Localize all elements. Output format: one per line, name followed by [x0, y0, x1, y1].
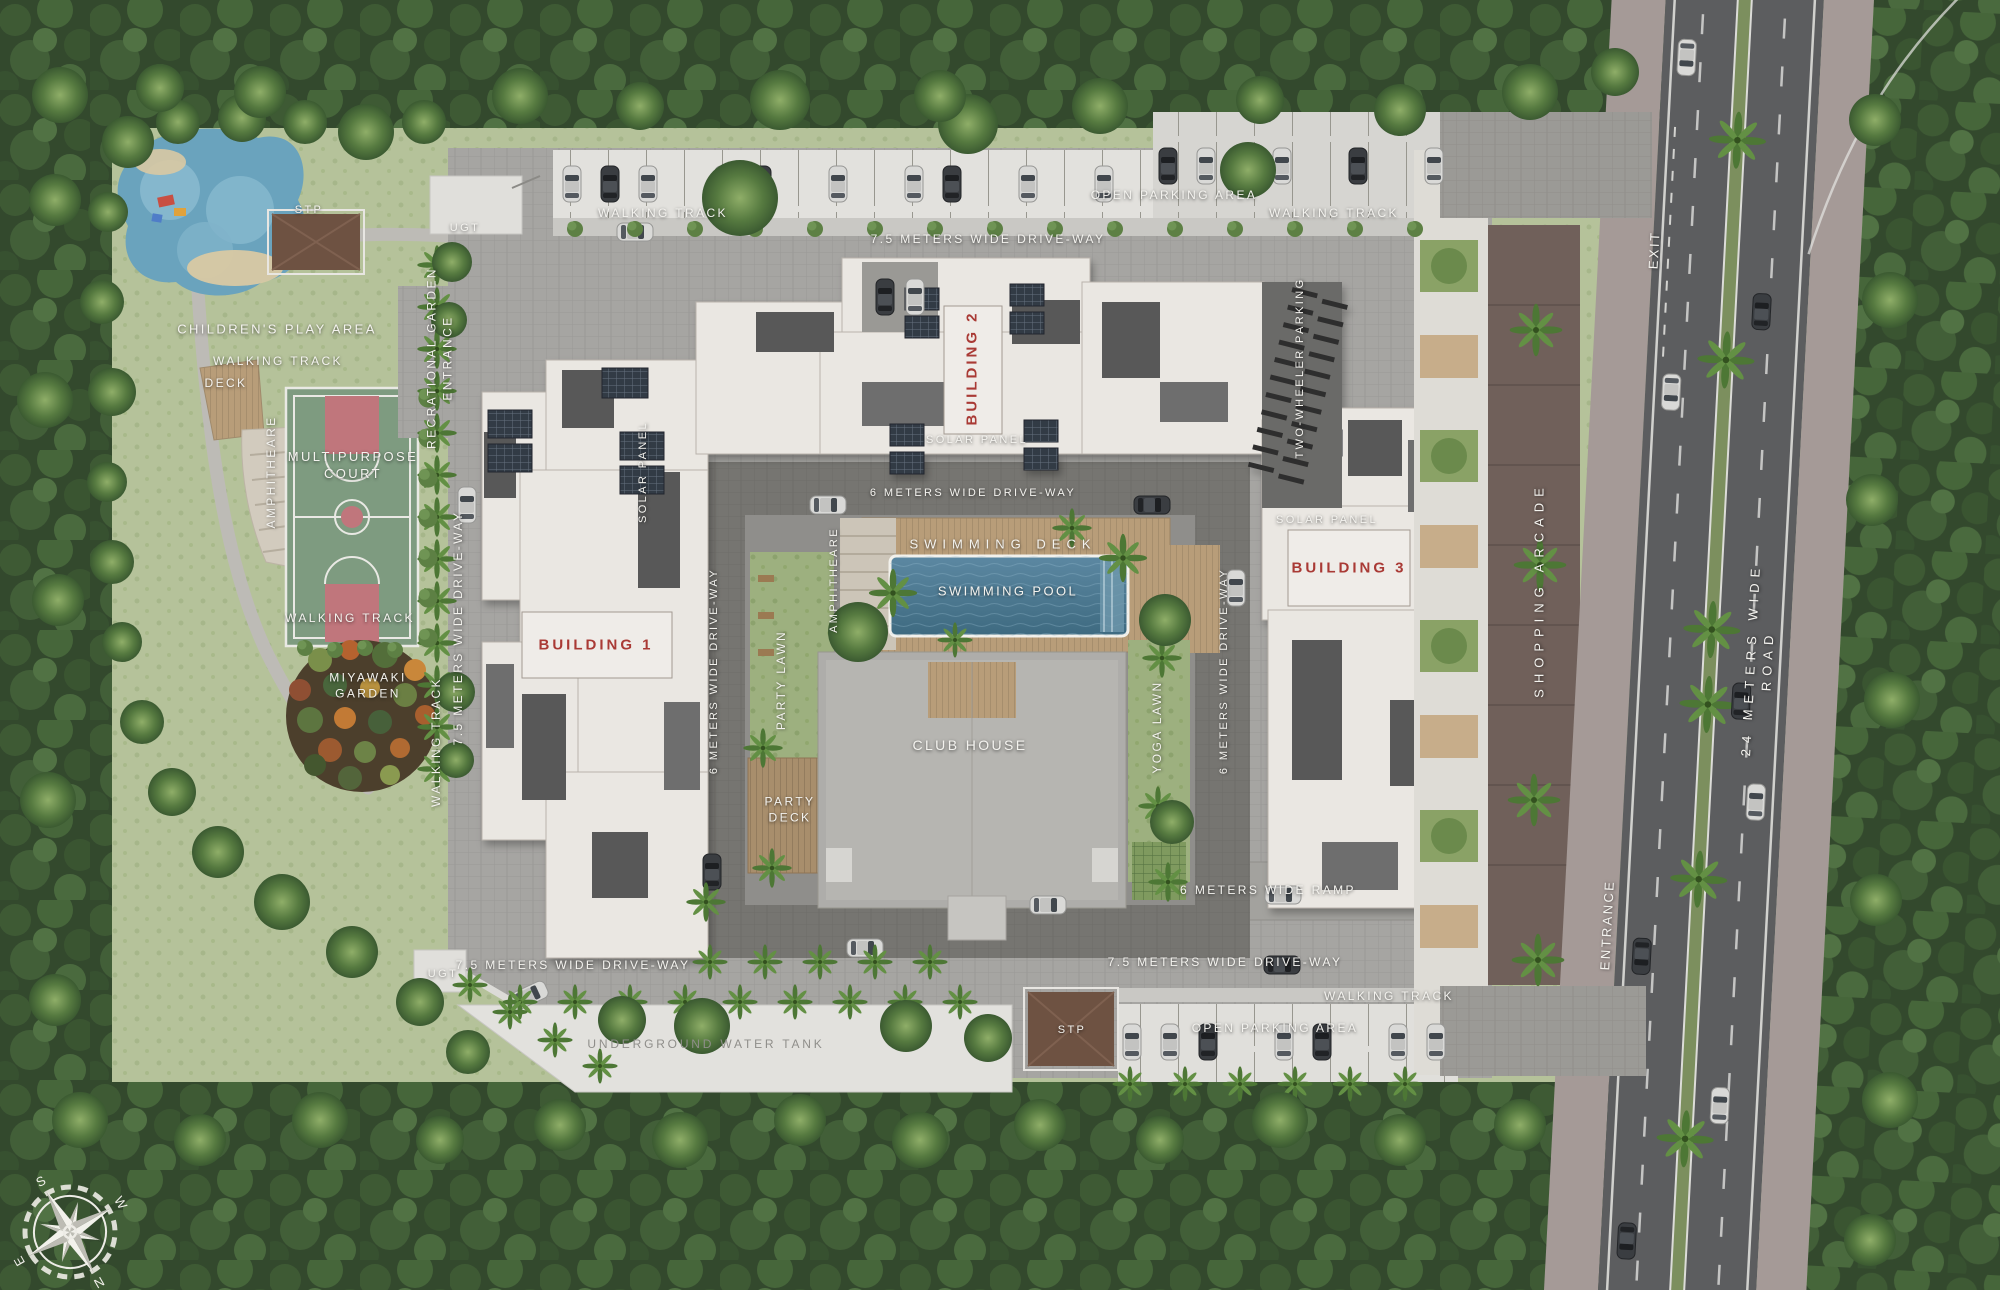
shopping-arcade-strip [1414, 150, 1580, 1075]
two-wheeler-parking-strip [1247, 282, 1349, 508]
site-plan-canvas: N E S W [0, 0, 2000, 1290]
site-plan: N E S W STPUGTCHILDREN'S PLAY AREAWALKIN… [0, 0, 2000, 1290]
